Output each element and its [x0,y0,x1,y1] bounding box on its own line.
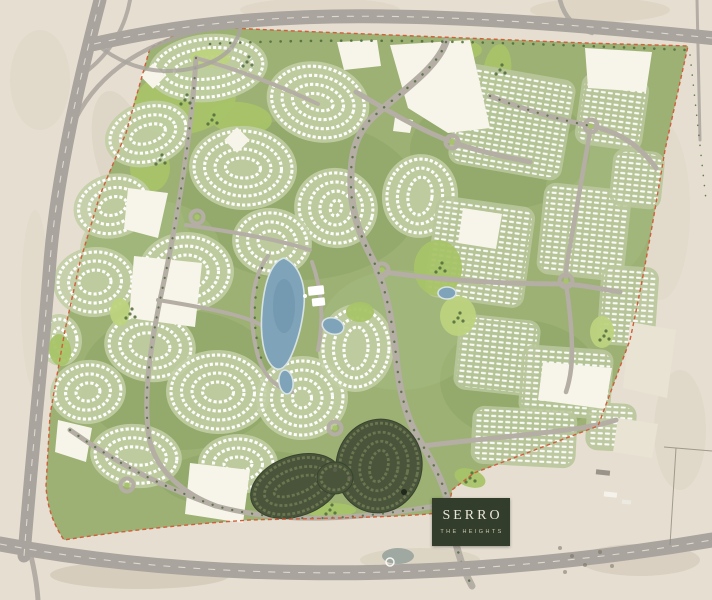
masterplan-map [0,0,712,600]
brand-plaque: SERRO THE HEIGHTS [432,498,510,546]
masterplan-screenshot: SERRO THE HEIGHTS [0,0,712,600]
brand-subtitle: THE HEIGHTS [438,529,503,535]
brand-title: SERRO [439,509,502,523]
